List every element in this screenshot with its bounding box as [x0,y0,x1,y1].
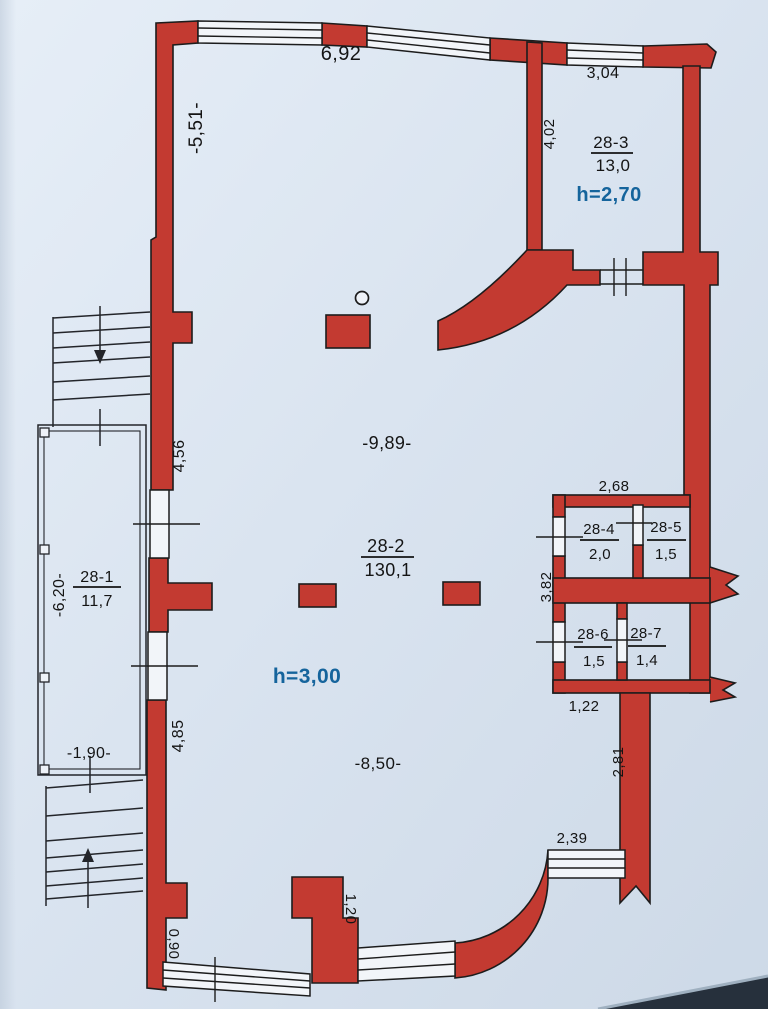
dim-top-right: 3,04 [587,65,620,82]
room4-number: 28-4 [583,521,615,538]
wall-block-top [553,495,690,507]
room5-number: 28-5 [650,519,682,536]
dim-room3-left: 4,02 [541,119,558,150]
dim-left-mid: 4,56 [171,440,188,473]
room3-number: 28-3 [593,133,629,152]
wall-room3-left [527,42,542,250]
dim-hall-upper: -9,89- [362,433,411,453]
dim-bottom-mid: 1,20 [342,894,359,925]
room3-height: h=2,70 [576,184,641,206]
dim-block-left: 3,82 [538,572,555,603]
wall-partition-67-top [617,603,627,619]
window-bottom-right [358,941,455,981]
room6-number: 28-6 [577,626,609,643]
dim-block-top: 2,68 [599,478,630,495]
dim-block-bottom: 1,22 [569,698,600,715]
room2-number: 28-2 [367,536,405,556]
dim-bottom-left: 0,90 [165,929,182,960]
room4-area: 2,0 [589,546,611,563]
column-upper [326,315,370,348]
dim-left-upper: -5,51- [186,102,207,154]
wall-block-left-1 [553,495,565,517]
dim-top-left: 6,92 [321,43,362,65]
window-239 [548,850,625,878]
room7-number: 28-7 [630,625,662,642]
room2-area: 130,1 [364,560,411,580]
room1-number: 28-1 [80,569,114,586]
room5-area: 1,5 [655,546,677,563]
dim-balcony-bottom: -1,90- [67,745,111,762]
column-mid-right [443,582,480,605]
window-top-a [198,21,322,45]
room7-area: 1,4 [636,652,658,669]
window-top-c [567,43,643,67]
room2-height: h=3,00 [273,665,341,688]
dim-balcony-left: -6,20- [51,573,68,617]
room3-area: 13,0 [596,156,631,175]
wall-block-bottom [553,680,710,693]
floor-plan-drawing: 6,92 3,04 -5,51- 4,02 28-3 13,0 h=2,70 -… [0,0,768,1009]
dim-hall-lower: -8,50- [355,754,402,773]
dim-left-lower: 4,85 [170,720,187,753]
dim-bottom-right: 2,39 [557,830,588,847]
paper-left-shadow [0,0,16,1009]
wall-partition-45 [633,545,643,578]
door-gap-45 [633,505,643,545]
room1-area: 11,7 [81,593,113,610]
room6-area: 1,5 [583,653,605,670]
column-circle-mark [356,292,369,305]
wall-partition-67-bottom [617,662,627,680]
column-mid-left [299,584,336,607]
wall-block-mid [553,578,710,603]
dim-right-lower: 2,81 [610,747,627,778]
wall-top-right-cap [643,44,716,68]
